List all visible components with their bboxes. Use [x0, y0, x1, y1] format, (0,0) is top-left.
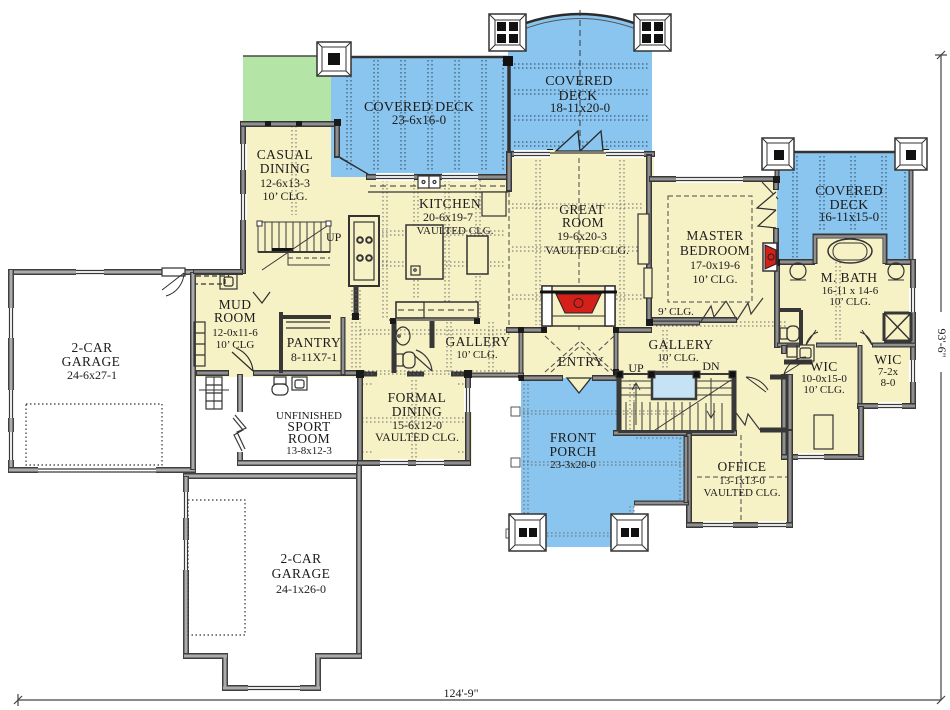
svg-text:GALLERY: GALLERY	[445, 334, 510, 349]
svg-text:GARAGE: GARAGE	[62, 354, 121, 369]
svg-text:ENTRY: ENTRY	[558, 354, 604, 369]
svg-text:DINING: DINING	[260, 161, 310, 176]
svg-text:ROOM: ROOM	[562, 215, 604, 230]
svg-text:10’ CLG.: 10’ CLG.	[803, 384, 845, 396]
svg-text:10’ CLG.: 10’ CLG.	[657, 352, 699, 364]
svg-text:PORCH: PORCH	[549, 444, 596, 459]
svg-text:23-3x20-0: 23-3x20-0	[550, 459, 596, 471]
svg-text:10’ CLG.: 10’ CLG.	[262, 189, 307, 203]
svg-text:124'-9": 124'-9"	[443, 686, 478, 700]
svg-text:24-6x27-1: 24-6x27-1	[67, 368, 117, 382]
svg-text:UP: UP	[326, 230, 342, 244]
svg-text:23-6x16-0: 23-6x16-0	[392, 112, 446, 127]
svg-text:PANTRY: PANTRY	[287, 335, 341, 350]
svg-text:13-1x13-0: 13-1x13-0	[719, 475, 765, 487]
svg-text:COVERED: COVERED	[545, 74, 613, 89]
svg-text:10’ CLG.: 10’ CLG.	[829, 296, 871, 308]
svg-text:WIC: WIC	[874, 352, 901, 367]
svg-text:DINING: DINING	[392, 404, 442, 419]
svg-text:12-0x11-6: 12-0x11-6	[212, 327, 258, 339]
svg-text:24-1x26-0: 24-1x26-0	[276, 582, 326, 596]
svg-text:2-CAR: 2-CAR	[280, 551, 321, 566]
svg-text:OFFICE: OFFICE	[718, 459, 767, 474]
svg-text:18-11x20-0: 18-11x20-0	[550, 100, 610, 115]
svg-text:ROOM: ROOM	[214, 310, 256, 325]
svg-text:M. BATH: M. BATH	[821, 270, 878, 285]
svg-text:FORMAL: FORMAL	[388, 390, 447, 405]
svg-text:GALLERY: GALLERY	[648, 337, 713, 352]
svg-text:VAULTED CLG.: VAULTED CLG.	[416, 225, 493, 237]
svg-text:19-6x20-3: 19-6x20-3	[557, 229, 607, 243]
svg-text:ROOM: ROOM	[288, 431, 330, 446]
svg-text:9’ CLG.: 9’ CLG.	[658, 306, 694, 318]
svg-text:10’ CLG: 10’ CLG	[216, 339, 255, 351]
svg-text:DN: DN	[702, 359, 720, 373]
svg-text:13-8x12-3: 13-8x12-3	[286, 445, 332, 457]
svg-text:VAULTED CLG.: VAULTED CLG.	[375, 430, 459, 444]
svg-text:VAULTED CLG.: VAULTED CLG.	[703, 487, 780, 499]
svg-text:GARAGE: GARAGE	[272, 566, 331, 581]
svg-text:16-11x15-0: 16-11x15-0	[819, 209, 879, 224]
svg-text:WIC: WIC	[810, 359, 837, 374]
svg-text:VAULTED CLG.: VAULTED CLG.	[545, 243, 629, 257]
svg-text:20-6x19-7: 20-6x19-7	[423, 210, 473, 224]
svg-text:MASTER: MASTER	[686, 228, 743, 243]
svg-text:UP: UP	[628, 361, 644, 375]
svg-text:2-CAR: 2-CAR	[71, 340, 112, 355]
svg-text:FRONT: FRONT	[550, 430, 597, 445]
svg-text:CASUAL: CASUAL	[257, 147, 313, 162]
svg-text:10’ CLG.: 10’ CLG.	[456, 349, 498, 361]
svg-text:KITCHEN: KITCHEN	[419, 196, 481, 211]
svg-text:8-0: 8-0	[881, 377, 896, 389]
svg-text:COVERED: COVERED	[815, 184, 883, 199]
svg-text:93'-6": 93'-6"	[935, 328, 949, 357]
svg-text:8-11X7-1: 8-11X7-1	[291, 350, 337, 364]
svg-text:BEDROOM: BEDROOM	[680, 243, 750, 258]
svg-text:12-6x13-3: 12-6x13-3	[260, 176, 310, 190]
svg-text:10’ CLG.: 10’ CLG.	[692, 272, 737, 286]
svg-text:17-0x19-6: 17-0x19-6	[690, 258, 740, 272]
